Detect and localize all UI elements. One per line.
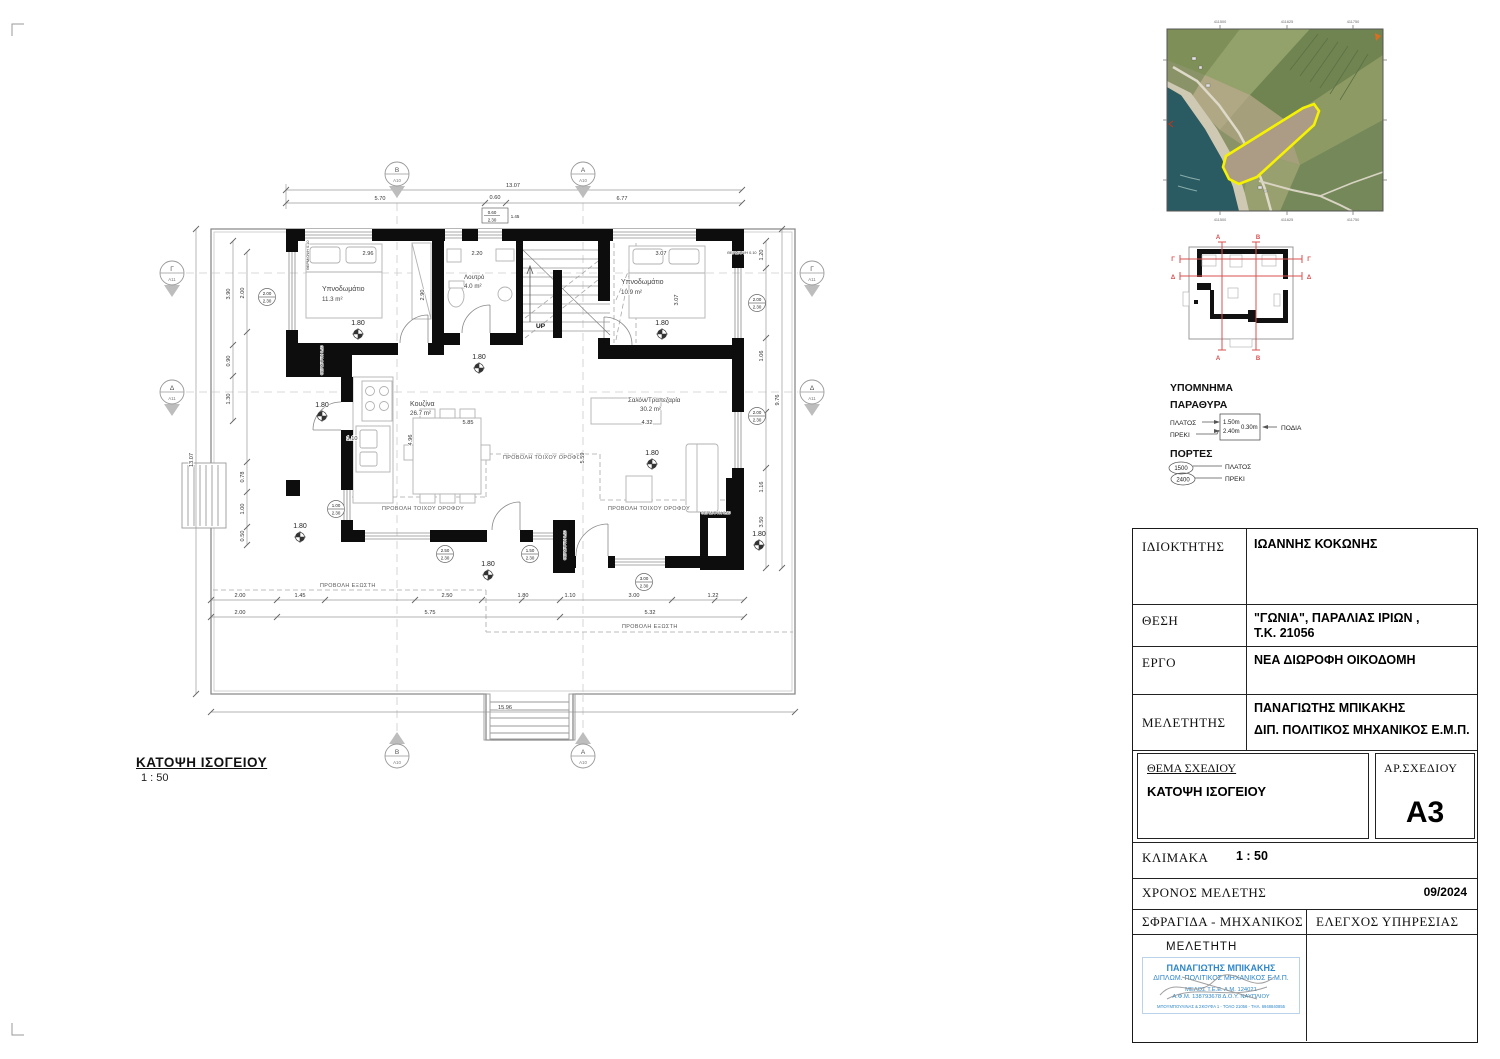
svg-text:2.30: 2.30 xyxy=(441,556,450,561)
number-label: ΑΡ.ΣΧΕΔΙΟΥ xyxy=(1384,761,1457,776)
dim: 3.90 xyxy=(226,289,232,300)
svg-text:3.00: 3.00 xyxy=(640,576,649,581)
dim: 2.96 xyxy=(363,251,374,257)
room-area: 10.9 m² xyxy=(621,289,642,296)
insulation-note: ΘΕΡΜ/ΟΨΗ 0.10 xyxy=(320,345,324,375)
level-value: 1.80 xyxy=(351,320,365,327)
legend-door-lintel: 2400 xyxy=(1176,478,1190,484)
dim: 5.70 xyxy=(375,196,386,202)
dim: 3.07 xyxy=(674,295,680,306)
dim: 1.30 xyxy=(226,394,232,405)
arrow-right-icon xyxy=(1214,429,1220,433)
section-marker-g-left: ΓΑ11 xyxy=(160,261,184,297)
legend-win-sill: 0.30m xyxy=(1241,425,1258,431)
project-value: ΝΕΑ ΔΙΩΡΟΦΗ ΟΙΚΟΔΟΜΗ xyxy=(1254,653,1416,667)
map-coordinate: 411625 xyxy=(1281,218,1293,222)
window-tag: 3.002.30 xyxy=(636,574,653,591)
legend-sill-label: ΠΟΔΙΑ xyxy=(1281,425,1302,432)
insulation-note: ΘΕΡΜ/ΟΨΗ 0.10 xyxy=(563,530,567,560)
dim: 0.50 xyxy=(240,531,246,542)
location-value-line1: "ΓΩΝΙΑ", ΠΑΡΑΛΙΑΣ ΙΡΙΩΝ , xyxy=(1254,611,1419,625)
room-area: 30.2 m² xyxy=(640,406,661,413)
key-section-a: Α xyxy=(1216,235,1221,241)
legend-door-width: 1500 xyxy=(1174,466,1188,472)
svg-text:Δ: Δ xyxy=(170,385,175,392)
svg-text:Α11: Α11 xyxy=(808,396,816,401)
location-value-line2: Τ.Κ. 21056 xyxy=(1254,626,1314,640)
svg-text:2.00: 2.00 xyxy=(753,410,762,415)
signature-scribble xyxy=(1142,957,1300,1014)
section-marker-d-right: ΔΑ11 xyxy=(800,380,824,416)
scale-value: 1 : 50 xyxy=(1236,849,1268,863)
legend-windows-heading: ΠΑΡΑΘΥΡΑ xyxy=(1170,399,1228,411)
dim: 1.10 xyxy=(565,593,576,599)
legend-heading: ΥΠΟΜΝΗΜΑ xyxy=(1170,382,1233,394)
svg-text:Α11: Α11 xyxy=(168,277,176,282)
drawing-number: A3 xyxy=(1376,796,1474,830)
tag-sill: 1.45 xyxy=(511,214,520,219)
kitchen-counter xyxy=(353,377,393,503)
section-marker-a-top: ΑΑ10 xyxy=(571,162,595,198)
title-block: ΙΔΙΟΚΤΗΤΗΣ ΙΩΑΝΝΗΣ ΚΟΚΩΝΗΣ ΘΕΣΗ "ΓΩΝΙΑ",… xyxy=(1132,528,1478,1043)
engineer-label: ΜΕΛΕΤΗΤΗΣ xyxy=(1142,715,1226,731)
legend-win-lintel: 2.40m xyxy=(1223,429,1240,435)
key-section-g: Γ xyxy=(1171,257,1175,263)
svg-text:Β: Β xyxy=(395,167,399,174)
drawing-sheet: UP xyxy=(0,0,1500,1059)
engineer-value-line2: ΔΙΠ. ΠΟΛΙΤΙΚΟΣ ΜΗΧΑΝΙΚΟΣ Ε.Μ.Π. xyxy=(1254,723,1470,737)
wall-projection-note: ΠΡΟΒΟΛΗ ΤΟΙΧΟΥ ΟΡΟΦΟΥ xyxy=(382,506,464,512)
key-section-b: Β xyxy=(1256,235,1261,241)
entrance-steps xyxy=(484,694,575,740)
dim: 5.59 xyxy=(580,453,586,464)
dim: 3.07 xyxy=(656,251,667,257)
sheet-corner-marks xyxy=(12,24,24,1035)
level-value: 1.80 xyxy=(293,523,307,530)
key-section-a: Α xyxy=(1216,356,1221,362)
dim: 2.00 xyxy=(240,288,246,299)
level-value: 1.80 xyxy=(645,450,659,457)
key-plan: Α Β Α Β Γ Γ Δ Δ xyxy=(1171,235,1312,362)
dim: 13.07 xyxy=(189,453,195,467)
svg-text:2.30: 2.30 xyxy=(753,305,762,310)
dim: 1.10 xyxy=(347,436,358,442)
section-marker-b-top: ΒΑ10 xyxy=(385,162,409,198)
owner-value: ΙΩΑΝΝΗΣ ΚΟΚΩΝΗΣ xyxy=(1254,537,1377,551)
insulation-note: ΘΕΡΜ/ΟΨΗ 0.10 xyxy=(727,251,757,255)
date-value: 09/2024 xyxy=(1424,885,1467,899)
level-value: 1.80 xyxy=(481,561,495,568)
svg-text:2.30: 2.30 xyxy=(753,418,762,423)
svg-text:1.50: 1.50 xyxy=(526,548,535,553)
legend-doors-heading: ΠΟΡΤΕΣ xyxy=(1170,448,1212,460)
svg-text:2.30: 2.30 xyxy=(640,584,649,589)
svg-text:Α: Α xyxy=(581,749,586,756)
svg-text:1.00: 1.00 xyxy=(332,503,341,508)
map-coordinate: 411750 xyxy=(1347,20,1359,24)
insulation-note: ΘΕΡΜ/ΟΨΗ 0.10 xyxy=(306,240,310,270)
dim: 0.90 xyxy=(226,356,232,367)
legend-width-label: ΠΛΑΤΟΣ xyxy=(1170,420,1196,427)
check-label: ΕΛΕΓΧΟΣ ΥΠΗΡΕΣΙΑΣ xyxy=(1316,914,1459,930)
room-label: Υπνοδωμάτιο xyxy=(621,278,664,286)
subject-value: ΚΑΤΟΨΗ ΙΣΟΓΕΙΟΥ xyxy=(1147,784,1266,799)
window-tag: 2.502.30 xyxy=(437,546,454,563)
dim: 1.80 xyxy=(518,593,529,599)
legend-lintel-label: ΠΡΕΚΙ xyxy=(1225,476,1245,483)
date-label: ΧΡΟΝΟΣ ΜΕΛΕΤΗΣ xyxy=(1142,885,1266,901)
svg-text:2.00: 2.00 xyxy=(753,297,762,302)
key-section-d: Δ xyxy=(1171,275,1176,281)
room-label: Κουζίνα xyxy=(410,400,435,408)
dim: 1.20 xyxy=(759,250,765,261)
owner-label: ΙΔΙΟΚΤΗΤΗΣ xyxy=(1142,539,1224,555)
arrow-right-icon xyxy=(1214,420,1220,424)
svg-text:2.50: 2.50 xyxy=(441,548,450,553)
window-tag: 2.002.30 xyxy=(749,295,766,312)
level-value: 1.80 xyxy=(315,402,329,409)
svg-text:Γ: Γ xyxy=(170,266,174,273)
dim: 1.06 xyxy=(759,351,765,362)
wall-projection-note: ΠΡΟΒΟΛΗ ΤΟΙΧΟΥ ΟΡΟΦΟΥ xyxy=(503,455,585,461)
svg-text:Α11: Α11 xyxy=(808,277,816,282)
site-map: 411500 411625 411750 411500 411625 41175… xyxy=(1163,20,1387,222)
subject-label: ΘΕΜΑ ΣΧΕΔΙΟΥ xyxy=(1147,761,1236,776)
location-label: ΘΕΣΗ xyxy=(1142,613,1178,629)
svg-text:Δ: Δ xyxy=(810,385,815,392)
dim: 0.60 xyxy=(490,195,501,201)
balcony-projection-note: ΠΡΟΒΟΛΗ ΕΞΩΣΤΗ xyxy=(320,583,376,589)
level-value: 1.80 xyxy=(472,354,486,361)
map-coordinate: 411500 xyxy=(1214,20,1226,24)
section-marker-d-left: ΔΑ11 xyxy=(160,380,184,416)
room-label: Σαλόνι/Τραπεζαρία xyxy=(628,397,681,404)
arrow-left-icon xyxy=(1262,425,1268,429)
floor-plan: UP xyxy=(160,162,824,768)
svg-text:Α11: Α11 xyxy=(168,396,176,401)
dim: 2.90 xyxy=(420,290,426,301)
dim: 2.50 xyxy=(442,593,453,599)
subject-box: ΘΕΜΑ ΣΧΕΔΙΟΥ ΚΑΤΟΨΗ ΙΣΟΓΕΙΟΥ xyxy=(1137,753,1369,839)
svg-text:Γ: Γ xyxy=(810,266,814,273)
svg-text:Α10: Α10 xyxy=(579,178,587,183)
dim: 2.20 xyxy=(472,251,483,257)
room-label: Υπνοδωμάτιο xyxy=(322,285,365,293)
dim: 6.77 xyxy=(617,196,628,202)
legend-win-width: 1.50m xyxy=(1223,420,1240,426)
dim: 2.00 xyxy=(235,610,246,616)
svg-text:Α10: Α10 xyxy=(393,760,401,765)
dim: 15.96 xyxy=(498,705,512,711)
dining-table xyxy=(404,409,490,503)
project-label: ΕΡΓΟ xyxy=(1142,655,1176,671)
dim: 1.45 xyxy=(295,593,306,599)
dim: 2.00 xyxy=(235,593,246,599)
west-stair xyxy=(182,463,226,528)
svg-text:2.00: 2.00 xyxy=(263,291,272,296)
section-marker-g-right: ΓΑ11 xyxy=(800,261,824,297)
window-tag: 2.002.30 xyxy=(749,408,766,425)
svg-text:Α10: Α10 xyxy=(579,760,587,765)
key-section-b: Β xyxy=(1256,356,1261,362)
window-tag: 2.002.30 xyxy=(259,289,276,306)
window-tag-box: 0.60 2.30 1.45 xyxy=(482,208,520,223)
level-value: 1.80 xyxy=(752,531,766,538)
room-area: 4.0 m² xyxy=(464,283,482,290)
map-coordinate: 411750 xyxy=(1347,218,1359,222)
svg-text:Α10: Α10 xyxy=(393,178,401,183)
balcony-projection-note: ΠΡΟΒΟΛΗ ΕΞΩΣΤΗ xyxy=(622,624,678,630)
map-coordinate: 411500 xyxy=(1214,218,1226,222)
scale-label: ΚΛΙΜΑΚΑ xyxy=(1142,850,1208,866)
plan-caption-scale: 1 : 50 xyxy=(141,772,169,784)
room-area: 26.7 m² xyxy=(410,410,431,417)
legend: ΥΠΟΜΝΗΜΑ ΠΑΡΑΘΥΡΑ ΠΛΑΤΟΣ ΠΡΕΚΙ 1.50m 2.4… xyxy=(1169,382,1302,485)
svg-text:2.30: 2.30 xyxy=(332,511,341,516)
legend-width-label: ΠΛΑΤΟΣ xyxy=(1225,464,1251,471)
key-section-g: Γ xyxy=(1307,257,1311,263)
stamp-label: ΣΦΡΑΓΙΔΑ - ΜΗΧΑΝΙΚΟΣ xyxy=(1142,914,1303,930)
window-tag: 1.002.30 xyxy=(328,501,345,518)
dim: 1.00 xyxy=(240,504,246,515)
dim: 3.50 xyxy=(759,517,765,528)
dim: 3.00 xyxy=(629,593,640,599)
tag-lintel: 2.30 xyxy=(488,218,497,223)
room-label: Λουτρό xyxy=(464,274,485,281)
dim: 13.07 xyxy=(506,183,520,189)
dim: 1.16 xyxy=(759,482,765,493)
number-box: ΑΡ.ΣΧΕΔΙΟΥ A3 xyxy=(1375,753,1475,839)
dim: 5.32 xyxy=(645,610,656,616)
section-marker-b-bottom: ΒΑ10 xyxy=(385,732,409,768)
legend-lintel-label: ΠΡΕΚΙ xyxy=(1170,432,1190,439)
dim: 4.32 xyxy=(642,420,653,426)
key-section-d: Δ xyxy=(1307,275,1312,281)
svg-text:2.30: 2.30 xyxy=(526,556,535,561)
dim: 1.22 xyxy=(708,593,719,599)
svg-text:Β: Β xyxy=(395,749,399,756)
stair-up-label: UP xyxy=(536,323,546,330)
room-area: 11.3 m² xyxy=(322,296,343,303)
stamp-heading: ΜΕΛΕΤΗΤΗ xyxy=(1166,941,1237,953)
window-tag: 1.502.30 xyxy=(522,546,539,563)
svg-text:Α: Α xyxy=(581,167,586,174)
plan-caption-title: ΚΑΤΟΨΗ ΙΣΟΓΕΙΟΥ xyxy=(136,755,267,770)
dim: 5.75 xyxy=(425,610,436,616)
svg-text:2.30: 2.30 xyxy=(263,299,272,304)
insulation-note: ΘΕΡΜ/ΟΨΗ 0.10 xyxy=(701,511,731,515)
dim: 0.78 xyxy=(240,472,246,483)
wall-projection-note: ΠΡΟΒΟΛΗ ΤΟΙΧΟΥ ΟΡΟΦΟΥ xyxy=(608,506,690,512)
dim: 4.96 xyxy=(408,435,414,446)
dim: 9.76 xyxy=(775,395,781,406)
map-coordinate: 411625 xyxy=(1281,20,1293,24)
level-value: 1.80 xyxy=(655,320,669,327)
engineer-value-line1: ΠΑΝΑΓΙΩΤΗΣ ΜΠΙΚΑΚΗΣ xyxy=(1254,701,1405,715)
tag-width: 0.60 xyxy=(488,210,497,215)
dim: 5.85 xyxy=(463,420,474,426)
